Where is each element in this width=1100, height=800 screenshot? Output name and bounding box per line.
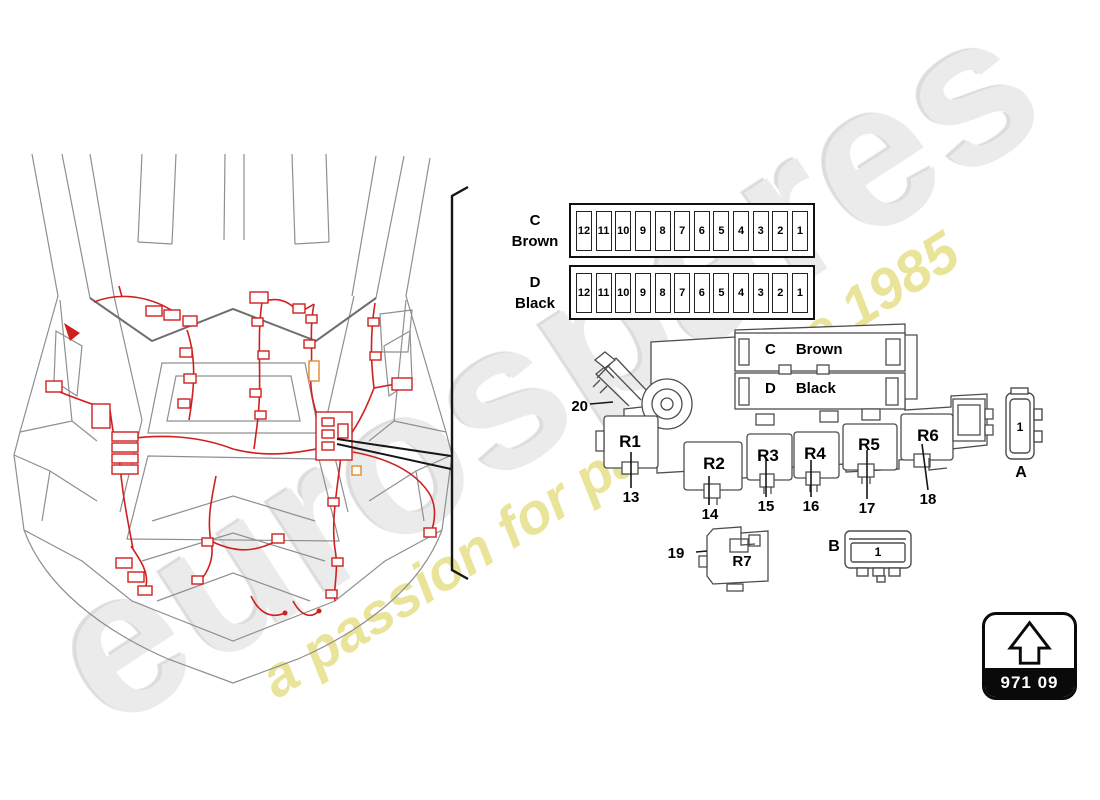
callout-20: 20 — [552, 398, 588, 415]
connector-a-pin: 1 — [1008, 420, 1032, 434]
callout-17: 17 — [849, 500, 885, 517]
wiring-harness-drawing — [46, 286, 436, 616]
fuse-cell: 6 — [694, 273, 710, 313]
strip-c-label: C Brown — [500, 210, 570, 252]
diagram-line-art — [0, 0, 1100, 800]
fusebox-bar-c-label: C Brown — [765, 341, 843, 358]
fuse-cell: 7 — [674, 273, 690, 313]
callout-13: 13 — [613, 489, 649, 506]
bar-d-letter: D — [765, 380, 776, 397]
relay-label-r4: R4 — [793, 444, 837, 464]
relay-label-r1: R1 — [608, 432, 652, 452]
fuse-cell: 2 — [772, 273, 788, 313]
strip-c-color: Brown — [500, 231, 570, 252]
relay-label-r5: R5 — [847, 435, 891, 455]
fuse-cell: 4 — [733, 273, 749, 313]
strip-d-color: Black — [500, 293, 570, 314]
fuse-cell: 12 — [576, 273, 592, 313]
fuse-cell: 1 — [792, 273, 808, 313]
strip-c-letter: C — [500, 210, 570, 231]
bar-d-color: Black — [796, 380, 836, 397]
car-outline-drawing — [14, 154, 452, 683]
connector-b-pin: 1 — [866, 545, 890, 559]
bar-c-color: Brown — [796, 341, 843, 358]
fuse-cell: 12 — [576, 211, 592, 251]
fuse-cell: 3 — [753, 273, 769, 313]
fuse-cell: 8 — [655, 211, 671, 251]
relay-label-r2: R2 — [692, 454, 736, 474]
part-code: 971 09 — [985, 668, 1074, 697]
fuse-cell: 9 — [635, 273, 651, 313]
strip-d-label: D Black — [500, 272, 570, 314]
connector-b-label: B — [814, 538, 854, 556]
callout-18: 18 — [910, 491, 946, 508]
bar-c-letter: C — [765, 341, 776, 358]
connector-a-label: A — [1001, 464, 1041, 482]
callout-15: 15 — [748, 498, 784, 515]
fuse-cell: 10 — [615, 211, 631, 251]
strip-d-letter: D — [500, 272, 570, 293]
parts-diagram-page: eurospares a passion for parts since 198… — [0, 0, 1100, 800]
relay-label-r3: R3 — [746, 446, 790, 466]
fuse-strip-c: 12 11 10 9 8 7 6 5 4 3 2 1 — [569, 203, 815, 258]
fuse-strip-d: 12 11 10 9 8 7 6 5 4 3 2 1 — [569, 265, 815, 320]
fuse-cell: 7 — [674, 211, 690, 251]
fuse-cell: 6 — [694, 211, 710, 251]
fusebox-bar-d-label: D Black — [765, 380, 836, 397]
part-number-badge: 971 09 — [982, 612, 1077, 700]
relay-label-r6: R6 — [906, 426, 950, 446]
relay-label-r7: R7 — [722, 553, 762, 570]
fuse-cell: 2 — [772, 211, 788, 251]
up-arrow-icon — [985, 615, 1074, 669]
fuse-cell: 11 — [596, 211, 612, 251]
fuse-cell: 4 — [733, 211, 749, 251]
callout-19: 19 — [658, 545, 694, 562]
fuse-cell: 11 — [596, 273, 612, 313]
fuse-cell: 8 — [655, 273, 671, 313]
fuse-cell: 5 — [713, 211, 729, 251]
fuse-cell: 1 — [792, 211, 808, 251]
fuse-cell: 5 — [713, 273, 729, 313]
fuse-cell: 10 — [615, 273, 631, 313]
fuse-cell: 3 — [753, 211, 769, 251]
fuse-cell: 9 — [635, 211, 651, 251]
callout-14: 14 — [692, 506, 728, 523]
callout-16: 16 — [793, 498, 829, 515]
